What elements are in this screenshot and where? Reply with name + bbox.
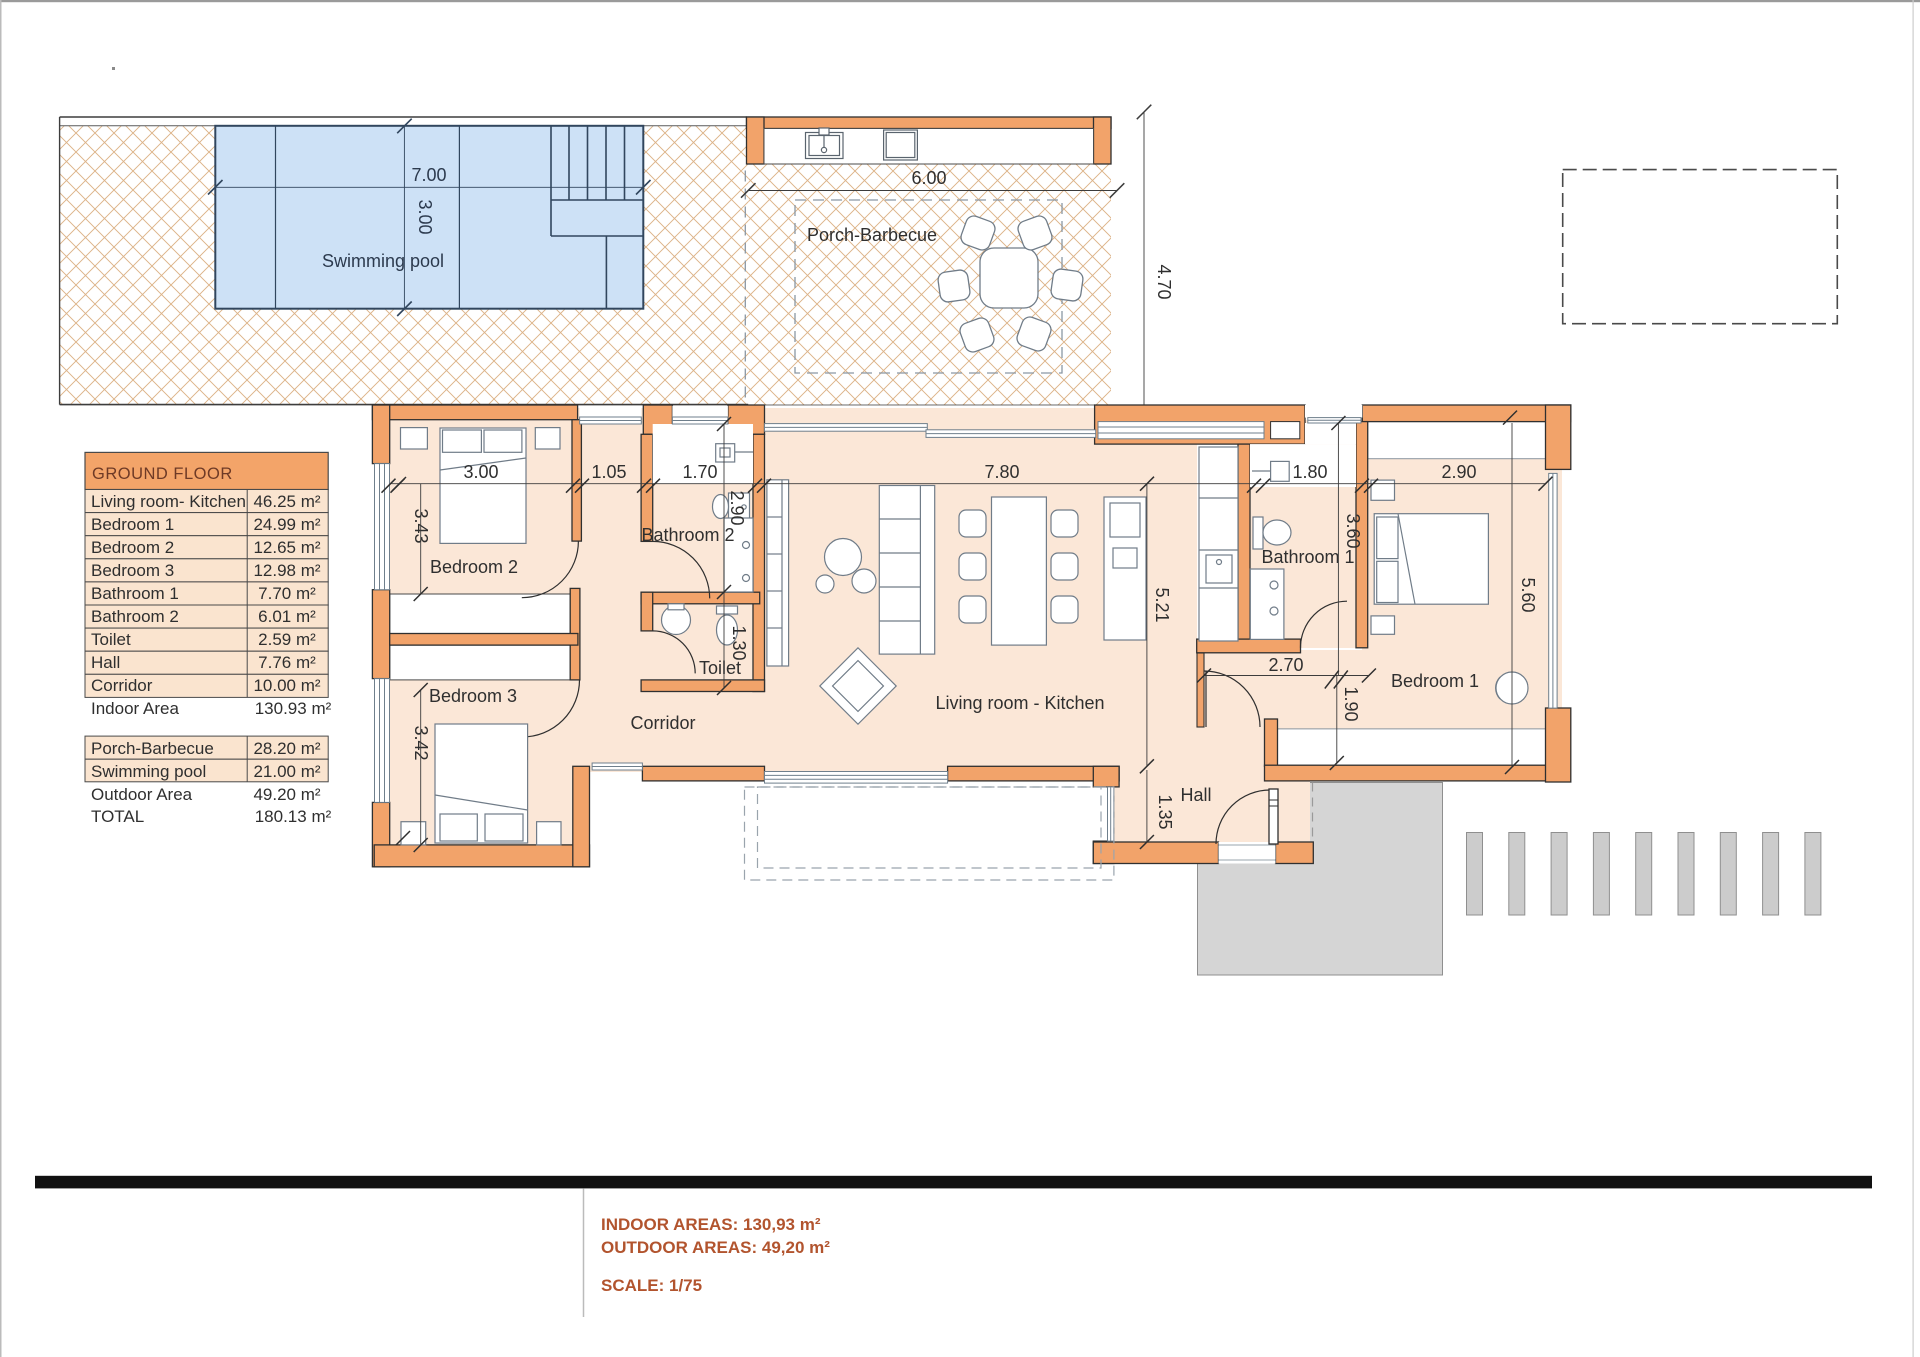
- svg-text:130.93 m²: 130.93 m²: [255, 699, 332, 718]
- svg-text:Bedroom 2: Bedroom 2: [91, 538, 174, 557]
- svg-text:INDOOR AREAS: 130,93 m²: INDOOR AREAS: 130,93 m²: [601, 1215, 821, 1234]
- svg-text:TOTAL: TOTAL: [91, 807, 144, 826]
- svg-text:21.00 m²: 21.00 m²: [253, 762, 320, 781]
- svg-text:Bathroom 1: Bathroom 1: [91, 584, 179, 603]
- svg-text:Corridor: Corridor: [91, 676, 153, 695]
- svg-text:Porch-Barbecue: Porch-Barbecue: [91, 739, 214, 758]
- svg-text:Bedroom 3: Bedroom 3: [91, 561, 174, 580]
- svg-text:180.13 m²: 180.13 m²: [255, 807, 332, 826]
- svg-text:24.99 m²: 24.99 m²: [253, 515, 320, 534]
- svg-text:SCALE: 1/75: SCALE: 1/75: [601, 1276, 702, 1295]
- svg-text:12.65 m²: 12.65 m²: [253, 538, 320, 557]
- svg-text:Bathroom 2: Bathroom 2: [91, 607, 179, 626]
- svg-text:7.70 m²: 7.70 m²: [258, 584, 316, 603]
- svg-text:Bedroom 1: Bedroom 1: [91, 515, 174, 534]
- svg-text:Living room- Kitchen: Living room- Kitchen: [91, 492, 246, 511]
- svg-text:GROUND FLOOR: GROUND FLOOR: [92, 465, 233, 483]
- svg-text:7.76 m²: 7.76 m²: [258, 653, 316, 672]
- svg-text:46.25 m²: 46.25 m²: [253, 492, 320, 511]
- svg-text:Indoor Area: Indoor Area: [91, 699, 179, 718]
- svg-text:Swimming pool: Swimming pool: [91, 762, 206, 781]
- svg-text:28.20 m²: 28.20 m²: [253, 739, 320, 758]
- svg-text:OUTDOOR AREAS: 49,20 m²: OUTDOOR AREAS: 49,20 m²: [601, 1238, 830, 1257]
- svg-text:6.01 m²: 6.01 m²: [258, 607, 316, 626]
- svg-text:Outdoor Area: Outdoor Area: [91, 785, 193, 804]
- svg-text:49.20 m²: 49.20 m²: [253, 785, 320, 804]
- svg-text:2.59 m²: 2.59 m²: [258, 630, 316, 649]
- svg-text:Hall: Hall: [91, 653, 120, 672]
- svg-text:Toilet: Toilet: [91, 630, 131, 649]
- svg-text:10.00 m²: 10.00 m²: [253, 676, 320, 695]
- svg-text:12.98 m²: 12.98 m²: [253, 561, 320, 580]
